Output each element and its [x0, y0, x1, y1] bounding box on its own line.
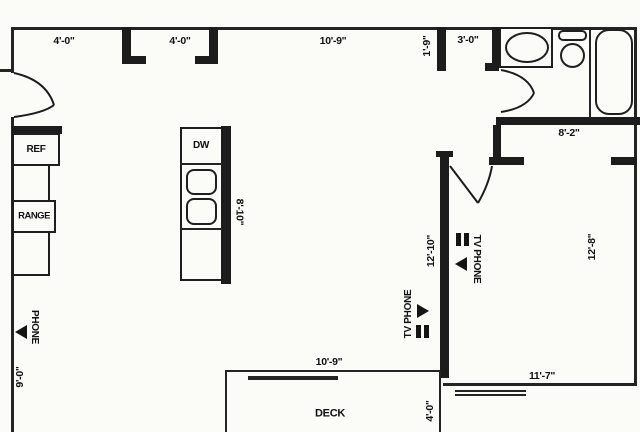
range-label: RANGE	[18, 211, 50, 221]
tv-phone-label-bedroom: TV PHONE	[471, 235, 481, 284]
dim-top-opening: 4'-0"	[169, 36, 190, 47]
dim-living-wall: 12'-10"	[426, 235, 437, 267]
bathroom-door-arc-lower	[501, 93, 534, 112]
entry-door-arc-upper	[14, 73, 54, 105]
dim-bedroom-closet-wall: 8'-2"	[558, 128, 579, 139]
refrigerator-label: REF	[26, 145, 45, 155]
phone-outlet-icon-bedroom	[455, 257, 467, 271]
dim-bedroom-width: 12'-8"	[587, 234, 598, 261]
bedroom-door-arc	[478, 166, 492, 203]
tv-outlet-icon-living	[416, 325, 429, 338]
phone-outlet-icon-kitchen	[15, 325, 27, 339]
entry-door-arc-lower	[14, 105, 54, 117]
dim-top-window-left: 4'-0"	[53, 36, 74, 47]
phone-outlet-label-kitchen: PHONE	[29, 310, 39, 344]
dim-deck-depth: 4'-0"	[425, 400, 436, 421]
dim-kitchen-wall: 9'-0"	[15, 366, 26, 387]
floor-plan: 4'-0" 4'-0" 10'-9" 3'-0" 8'-2" 10'-9" 11…	[0, 0, 640, 432]
dim-deck-width: 10'-9"	[316, 357, 343, 368]
dim-bedroom-window: 11'-7"	[529, 371, 555, 382]
dim-wall-stub: 1'-9"	[422, 35, 433, 56]
dim-top-window-main: 10'-9"	[320, 36, 347, 47]
dim-island-length: 8'-10"	[234, 199, 245, 226]
phone-outlet-icon-living	[417, 304, 429, 318]
bathroom-door-arc-upper	[501, 70, 534, 93]
deck-label: DECK	[315, 409, 345, 420]
tv-outlet-icon-bedroom	[456, 233, 469, 246]
dim-bath-hall: 3'-0"	[457, 35, 478, 46]
tv-phone-label-living: TV PHONE	[404, 290, 414, 339]
dishwasher-label: DW	[193, 141, 209, 151]
bedroom-door-leaf	[450, 166, 478, 203]
